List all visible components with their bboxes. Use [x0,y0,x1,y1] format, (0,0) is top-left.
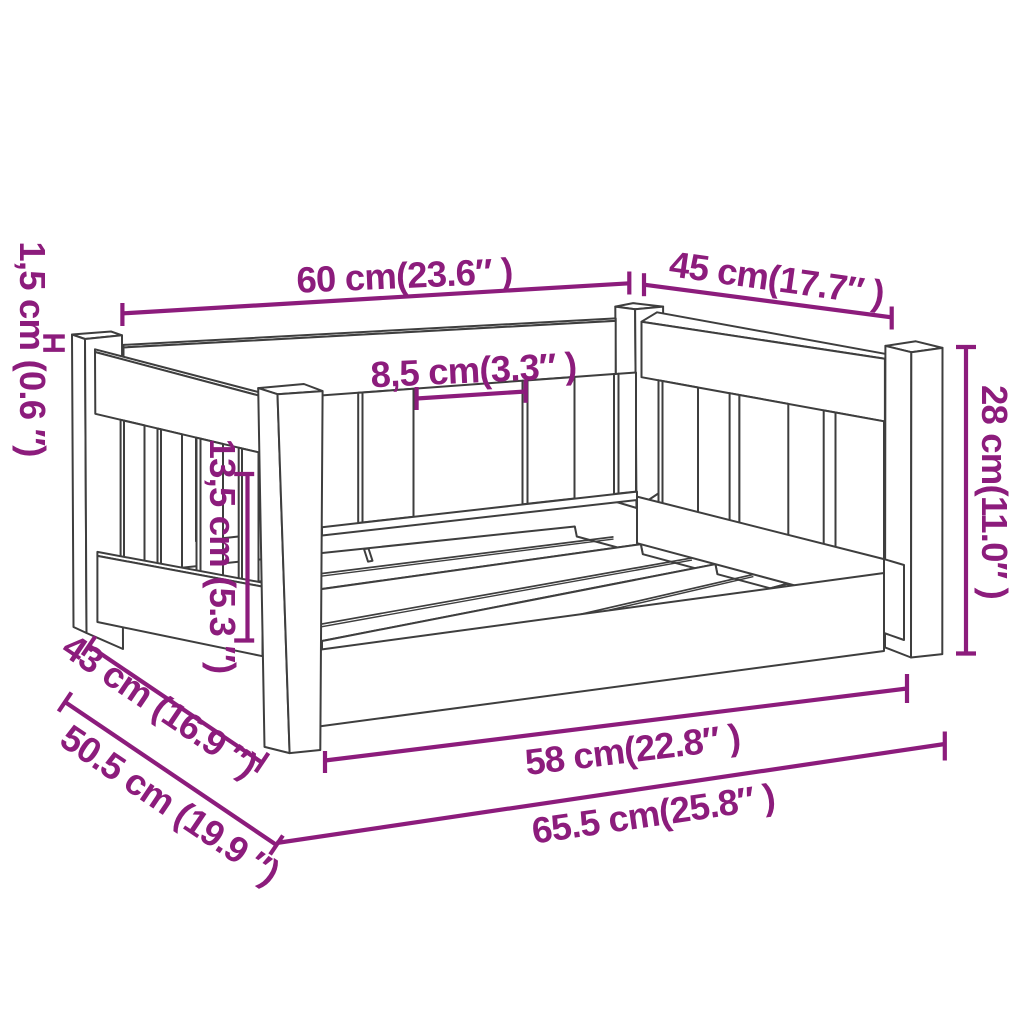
svg-text:28 cm(11.0″ ): 28 cm(11.0″ ) [974,385,1015,599]
svg-text:1,5 cm (0.6 ″): 1,5 cm (0.6 ″) [12,241,53,456]
svg-text:13,5 cm (5.3 ″): 13,5 cm (5.3 ″) [202,439,243,674]
